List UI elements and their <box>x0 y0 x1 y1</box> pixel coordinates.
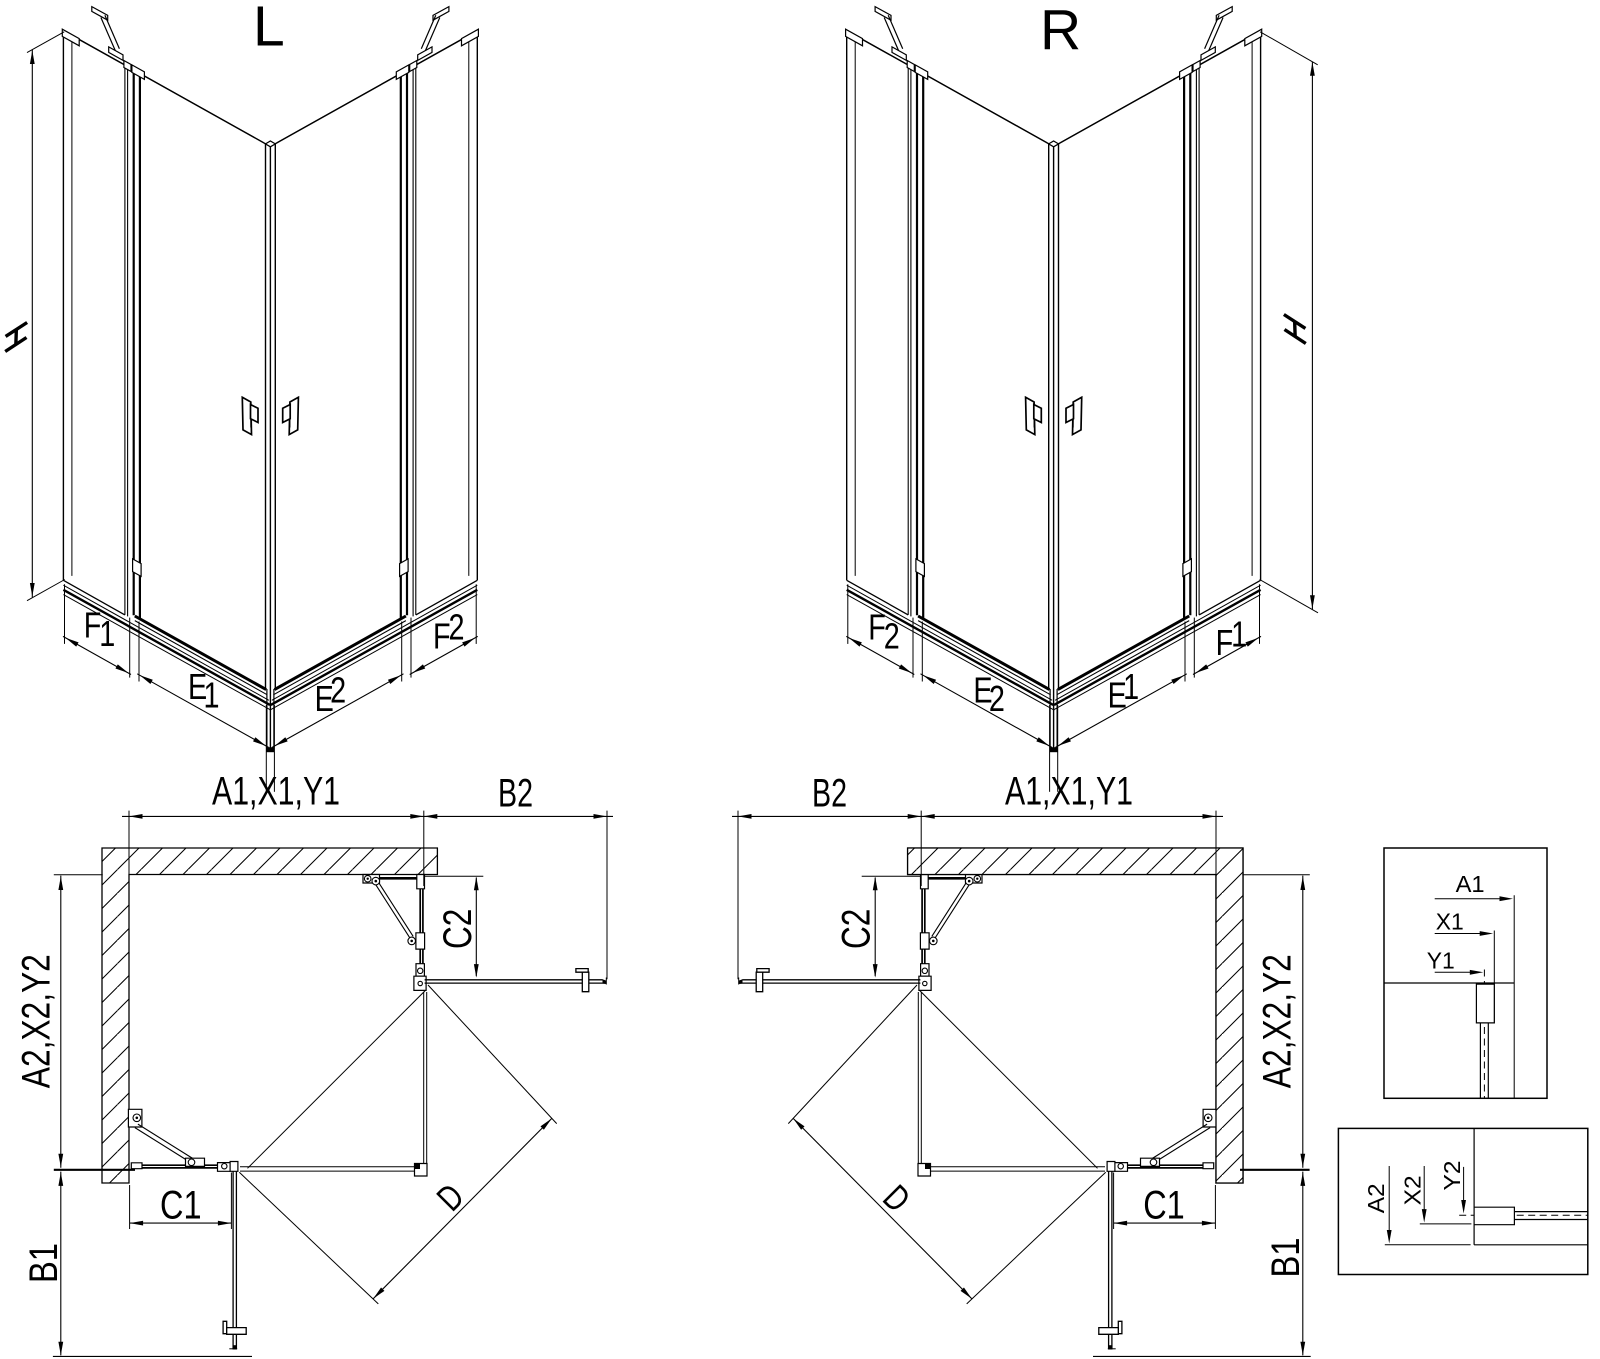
svg-text:X1: X1 <box>1436 909 1464 935</box>
svg-text:C2: C2 <box>835 909 879 949</box>
svg-text:C2: C2 <box>436 909 480 949</box>
svg-text:L: L <box>253 0 285 59</box>
svg-text:1: 1 <box>1123 666 1139 707</box>
svg-text:A2,X2,Y2: A2,X2,Y2 <box>1256 954 1300 1088</box>
svg-text:2: 2 <box>884 615 900 656</box>
svg-text:Y2: Y2 <box>1439 1161 1465 1191</box>
svg-text:B2: B2 <box>498 772 533 816</box>
svg-text:1: 1 <box>1231 613 1247 654</box>
svg-text:C1: C1 <box>160 1183 202 1227</box>
svg-text:B1: B1 <box>22 1243 66 1283</box>
svg-text:R: R <box>1040 0 1081 62</box>
svg-text:2: 2 <box>449 606 465 647</box>
svg-text:A1,X1,Y1: A1,X1,Y1 <box>1005 770 1133 814</box>
svg-text:C1: C1 <box>1143 1183 1185 1227</box>
svg-text:A1: A1 <box>1456 871 1485 897</box>
svg-text:Y1: Y1 <box>1427 947 1455 973</box>
svg-text:A2,X2,Y2: A2,X2,Y2 <box>14 954 58 1088</box>
svg-text:2: 2 <box>989 678 1005 719</box>
svg-text:A1,X1,Y1: A1,X1,Y1 <box>212 770 340 814</box>
svg-text:1: 1 <box>99 613 115 654</box>
svg-text:1: 1 <box>204 674 220 715</box>
svg-text:2: 2 <box>330 669 346 710</box>
svg-text:B2: B2 <box>812 772 847 816</box>
svg-text:B1: B1 <box>1264 1238 1308 1278</box>
svg-text:A2: A2 <box>1363 1183 1389 1213</box>
svg-text:X2: X2 <box>1400 1175 1426 1205</box>
